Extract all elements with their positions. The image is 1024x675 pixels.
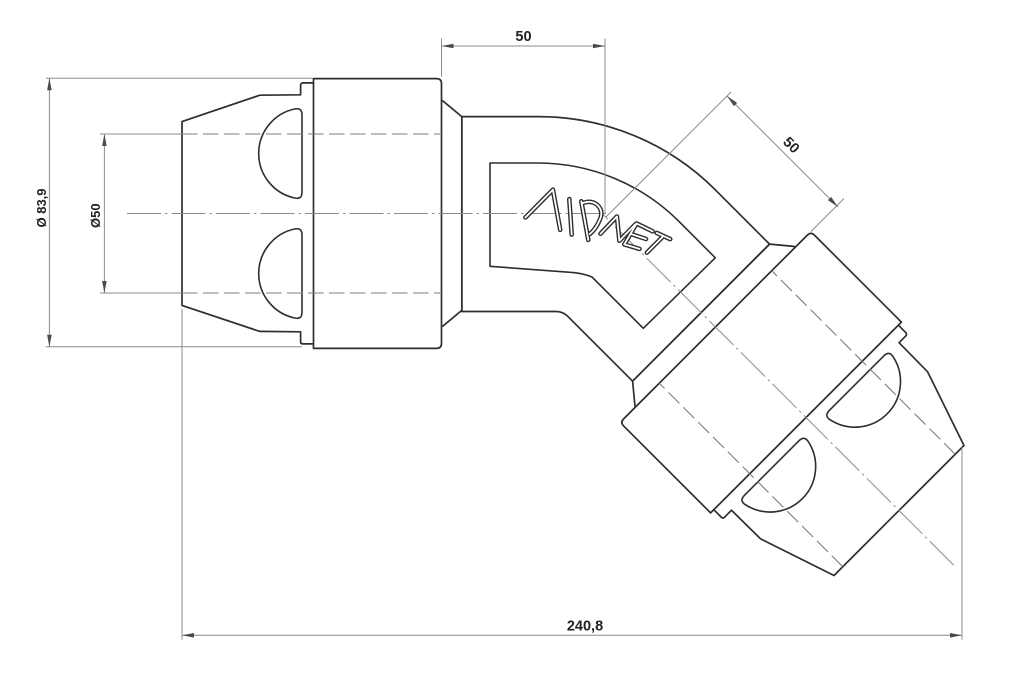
- svg-text:50: 50: [515, 29, 531, 45]
- svg-text:Ø 83,9: Ø 83,9: [34, 188, 49, 227]
- svg-text:240,8: 240,8: [567, 619, 603, 635]
- svg-text:Ø50: Ø50: [88, 203, 103, 228]
- svg-text:50: 50: [779, 134, 802, 157]
